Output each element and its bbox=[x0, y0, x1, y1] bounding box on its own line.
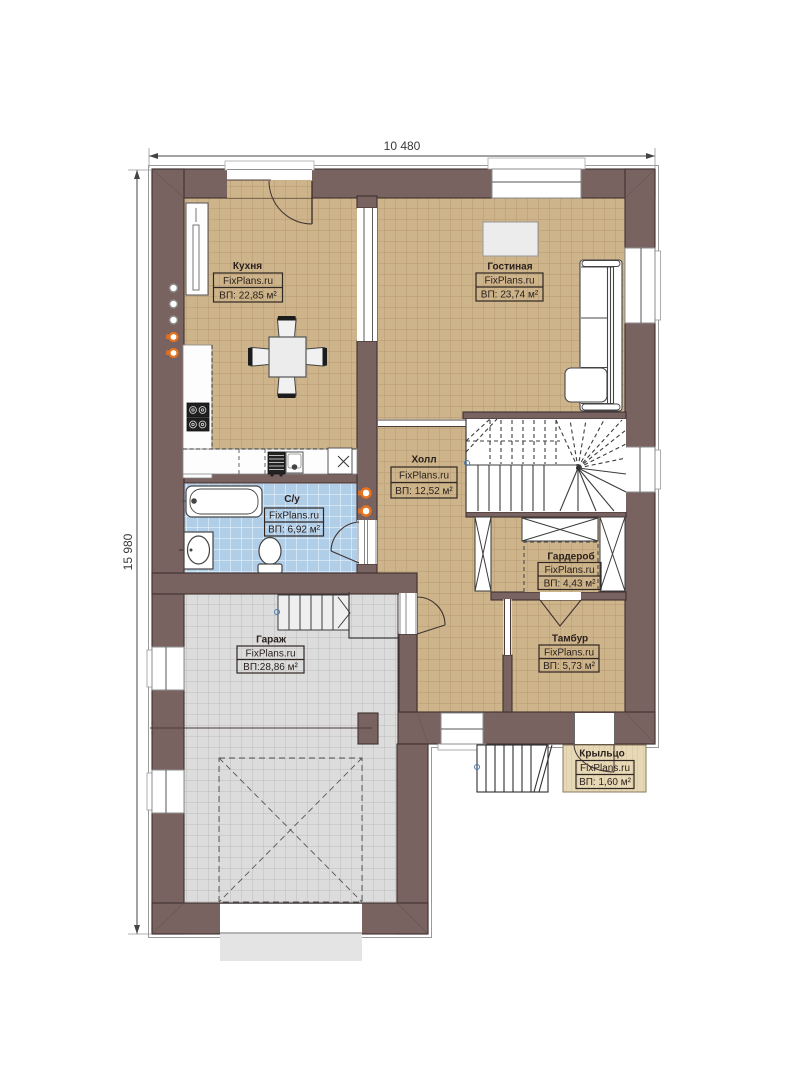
svg-text:С/у: С/у bbox=[284, 494, 300, 505]
svg-text:FixPlans.ru: FixPlans.ru bbox=[544, 565, 594, 576]
svg-text:Кухня: Кухня bbox=[233, 261, 262, 272]
svg-text:10 480: 10 480 bbox=[384, 139, 421, 153]
svg-text:ВП:28,86 м²: ВП:28,86 м² bbox=[243, 662, 298, 673]
svg-text:FixPlans.ru: FixPlans.ru bbox=[544, 647, 594, 658]
svg-text:ВП: 1,60 м²: ВП: 1,60 м² bbox=[579, 777, 632, 788]
svg-text:15 980: 15 980 bbox=[121, 533, 135, 570]
svg-text:FixPlans.ru: FixPlans.ru bbox=[484, 276, 534, 287]
svg-text:Крыльцо: Крыльцо bbox=[579, 749, 625, 760]
svg-text:ВП: 6,92 м²: ВП: 6,92 м² bbox=[268, 525, 321, 536]
svg-text:Гараж: Гараж bbox=[256, 635, 287, 646]
svg-text:Холл: Холл bbox=[411, 455, 436, 466]
svg-text:FixPlans.ru: FixPlans.ru bbox=[245, 648, 295, 659]
svg-text:Гостиная: Гостиная bbox=[487, 262, 532, 273]
svg-text:ВП: 23,74 м²: ВП: 23,74 м² bbox=[481, 290, 539, 301]
svg-text:Тамбур: Тамбур bbox=[552, 633, 588, 645]
svg-text:FixPlans.ru: FixPlans.ru bbox=[399, 470, 449, 481]
svg-text:FixPlans.ru: FixPlans.ru bbox=[223, 276, 273, 287]
svg-text:ВП: 5,73 м²: ВП: 5,73 м² bbox=[543, 661, 596, 672]
svg-text:FixPlans.ru: FixPlans.ru bbox=[269, 511, 319, 522]
svg-text:ВП: 4,43 м²: ВП: 4,43 м² bbox=[544, 578, 597, 589]
svg-text:ВП: 12,52 м²: ВП: 12,52 м² bbox=[395, 486, 453, 497]
svg-text:ВП: 22,85 м²: ВП: 22,85 м² bbox=[219, 290, 277, 301]
svg-text:Гардероб: Гардероб bbox=[547, 551, 594, 563]
svg-text:FixPlans.ru: FixPlans.ru bbox=[580, 763, 630, 774]
